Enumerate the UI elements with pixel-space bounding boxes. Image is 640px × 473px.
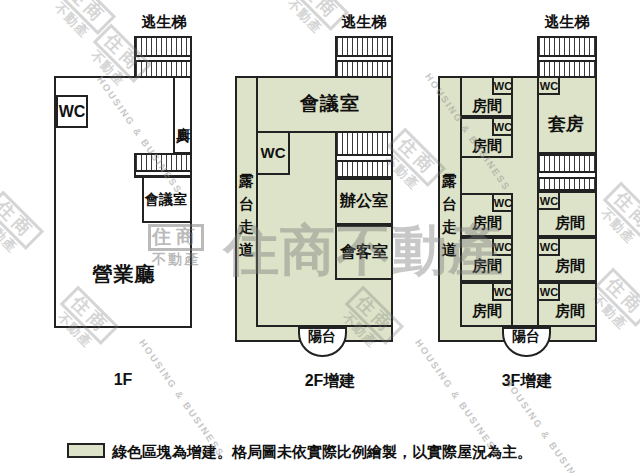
- room-label: 房間: [472, 98, 502, 115]
- suite-label-3f: 套房: [548, 115, 584, 135]
- walkway-label-2f: 露台走道: [238, 161, 255, 253]
- brand-stamp-box: 住商: [603, 182, 640, 241]
- wc-label: WC: [494, 121, 512, 133]
- wc-label: WC: [494, 286, 512, 298]
- meeting-room-label-2f: 會議室: [300, 94, 360, 115]
- stair-landing: [539, 171, 595, 179]
- room-label: 房間: [472, 215, 502, 232]
- brand-stamp-sub: 不動產: [592, 200, 640, 252]
- floor-label-2f: 2F增建: [305, 372, 356, 390]
- wc-label-1f: WC: [59, 103, 86, 121]
- brand-stamp-sub: 不動產: [279, 0, 331, 42]
- room-label: 房間: [472, 138, 502, 155]
- escape-stairs-label-1f: 逃生梯: [142, 14, 187, 31]
- wc-label: WC: [540, 195, 558, 207]
- brand-stamp-box: 住商: [57, 0, 116, 35]
- internal-stairs-1f: [134, 153, 192, 178]
- escape-stairs-label-3f: 逃生梯: [545, 14, 590, 31]
- room-label: 房間: [472, 258, 502, 275]
- room-label: 房間: [555, 303, 585, 320]
- brand-stamp-sub: 不動產: [0, 209, 26, 261]
- legend-green-swatch: [67, 443, 105, 458]
- brand-en-watermark: HOUSING & BUSINESS: [413, 337, 503, 459]
- hall-label-1f: 營業廳: [93, 263, 156, 285]
- floorplan-canvas: 逃生梯 WC 廚具 會議室 營業廳 1F 逃生梯 會議室 WC 辦公室 會客室 …: [0, 0, 640, 473]
- escape-stairs-2f: [335, 36, 393, 78]
- reception-label-2f: 會客室: [340, 243, 388, 261]
- stair-landing: [539, 55, 595, 62]
- balcony-label-2f: 陽台: [308, 329, 336, 344]
- wc-label: WC: [494, 80, 512, 92]
- brand-stamp-box: 住商: [290, 0, 349, 31]
- escape-stairs-3f: [537, 36, 597, 78]
- wc-label: WC: [494, 241, 512, 253]
- wc-label: WC: [540, 80, 558, 92]
- stair-landing: [337, 154, 391, 162]
- wc-label-2f: WC: [261, 145, 286, 162]
- meeting-room-label-1f: 會議室: [145, 192, 187, 207]
- room-label: 房間: [555, 258, 585, 275]
- wc-label: WC: [540, 286, 558, 298]
- kitchen-label-1f: 廚具: [175, 115, 190, 121]
- escape-stairs-1f: [134, 36, 192, 78]
- brand-stamp-box: 住商: [0, 191, 44, 250]
- internal-stairs-3f: [537, 154, 597, 191]
- walkway-label-3f: 露台走道: [441, 161, 458, 253]
- escape-stairs-label-2f: 逃生梯: [342, 14, 387, 31]
- legend-text: 綠色區塊為增建。格局圖未依實際比例繪製，以實際屋況為主。: [112, 443, 532, 462]
- brand-stamp: 住商 不動產: [46, 0, 116, 46]
- stair-landing: [337, 55, 391, 62]
- balcony-label-3f: 陽台: [512, 329, 540, 344]
- brand-stamp: 住商 不動產: [592, 182, 640, 252]
- internal-stairs-2f: [335, 131, 393, 178]
- brand-stamp-sub: 不動產: [46, 0, 98, 46]
- wc-label: WC: [540, 241, 558, 253]
- office-label-2f: 辦公室: [340, 192, 388, 210]
- room-label: 房間: [555, 215, 585, 232]
- stair-landing: [136, 55, 190, 62]
- brand-stamp-box: 住商: [595, 268, 640, 327]
- floor-label-1f: 1F: [114, 371, 133, 389]
- brand-en-watermark: HOUSING & BUSINESS: [137, 337, 227, 459]
- wc-label: WC: [494, 197, 512, 209]
- brand-stamp: 住商 不動產: [0, 191, 44, 261]
- floor-label-3f: 3F增建: [502, 372, 553, 390]
- room-label: 房間: [472, 303, 502, 320]
